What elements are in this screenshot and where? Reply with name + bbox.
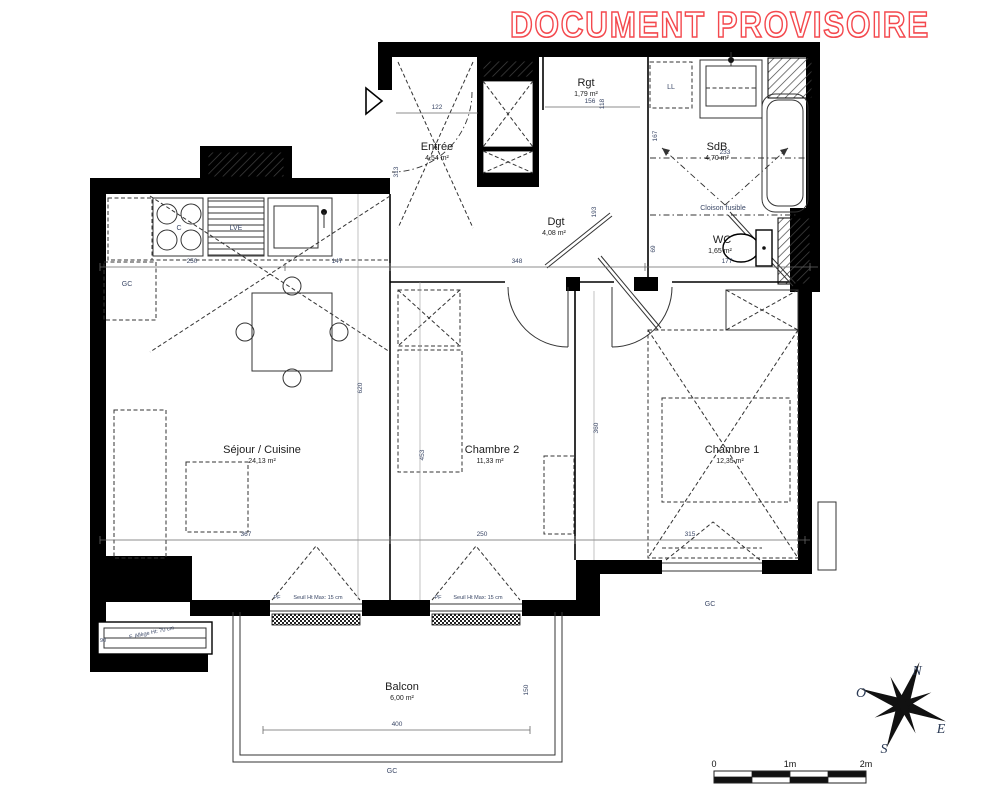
svg-text:1,65 m²: 1,65 m² <box>708 248 732 255</box>
watermark-text: DOCUMENT PROVISOIRE <box>510 4 930 45</box>
svg-text:Chambre 2: Chambre 2 <box>465 444 519 456</box>
room-label-chambre2: Chambre 2 11,33 m² <box>465 444 519 465</box>
compass-o: O <box>856 686 866 701</box>
compass-s: S <box>881 742 888 757</box>
outer-walls <box>90 42 836 672</box>
svg-text:Entrée: Entrée <box>421 141 453 153</box>
floor-plan-drawing: DOCUMENT PROVISOIRE <box>0 0 982 800</box>
dim-250a: 250 <box>187 258 198 265</box>
dim-118: 118 <box>599 98 606 109</box>
washing-machine: LL <box>650 62 692 108</box>
scale-2m: 2m <box>860 759 873 769</box>
dim-313: 313 <box>393 166 400 177</box>
svg-text:24,13 m²: 24,13 m² <box>248 458 276 465</box>
svg-text:Dgt: Dgt <box>547 216 564 228</box>
dim-balcon-depth: 150 <box>523 684 530 695</box>
svg-text:4,54 m²: 4,54 m² <box>425 155 449 162</box>
dim-177: 177 <box>722 258 733 265</box>
gc-label-balcon: GC <box>387 768 398 775</box>
dim-167: 167 <box>652 130 659 141</box>
room-label-entree: Entrée 4,54 m² <box>421 141 453 162</box>
bedroom1-furniture <box>648 290 798 558</box>
duct-gc: GC <box>104 262 156 320</box>
svg-text:Chambre 1: Chambre 1 <box>705 444 759 456</box>
stove: C <box>153 198 203 256</box>
dining-table <box>236 277 348 387</box>
desk <box>544 456 574 534</box>
entrance-arrow-icon <box>366 88 382 114</box>
seuil-label-1: Seuil Ht Max: 15 cm <box>293 595 343 601</box>
seuil-label-2: Seuil Ht Max: 15 cm <box>453 595 503 601</box>
svg-text:Séjour / Cuisine: Séjour / Cuisine <box>223 444 301 456</box>
scale-bar: 0 1m 2m <box>711 759 872 783</box>
dim-367: 367 <box>241 531 252 538</box>
pf-label-2: PF <box>434 595 442 601</box>
dim-315: 315 <box>685 531 696 538</box>
dim-90: 90 <box>100 638 106 644</box>
pf-label-1: PF <box>273 595 281 601</box>
dim-147: 147 <box>332 258 343 265</box>
dim-250b: 250 <box>477 531 488 538</box>
room-label-wc: WC 1,65 m² <box>708 234 732 255</box>
compass-n: N <box>911 664 922 679</box>
page: DOCUMENT PROVISOIRE <box>0 0 982 800</box>
dim-360: 360 <box>593 422 600 433</box>
bed-2 <box>398 350 462 472</box>
room-label-sdb: SdB 4,70 m² <box>705 141 729 162</box>
gc-label-kitchen: GC <box>122 281 133 288</box>
dim-620: 620 <box>357 382 364 393</box>
dim-69: 69 <box>650 245 657 253</box>
sofa <box>114 410 166 558</box>
svg-text:SdB: SdB <box>707 141 728 153</box>
scale-1m: 1m <box>784 759 797 769</box>
room-label-dgt: Dgt 4,08 m² <box>542 216 566 237</box>
coffee-table <box>186 462 248 532</box>
room-label-balcon: Balcon 6,00 m² <box>385 681 419 702</box>
room-label-rgt: Rgt 1,79 m² <box>574 77 598 98</box>
dim-122: 122 <box>432 104 443 111</box>
svg-text:11,33 m²: 11,33 m² <box>476 458 504 465</box>
scale-0: 0 <box>711 759 716 769</box>
dishwasher-label: LVE <box>230 225 243 232</box>
svg-text:12,35 m²: 12,35 m² <box>716 458 744 465</box>
svg-text:4,08 m²: 4,08 m² <box>542 230 566 237</box>
svg-text:WC: WC <box>713 234 731 246</box>
bedroom2-furniture <box>398 290 574 534</box>
cloison-fusible-label: Cloison fusible <box>700 205 746 212</box>
stove-label: C <box>176 225 181 232</box>
fridge <box>108 198 152 260</box>
dishwasher: LVE <box>208 198 264 256</box>
openings <box>98 522 762 654</box>
kitchen-sink <box>268 198 332 256</box>
dim-193: 193 <box>591 206 598 217</box>
svg-text:6,00 m²: 6,00 m² <box>390 695 414 702</box>
compass-e: E <box>936 722 946 737</box>
svg-text:Rgt: Rgt <box>577 77 594 89</box>
dim-156: 156 <box>585 98 596 105</box>
svg-text:4,70 m²: 4,70 m² <box>705 155 729 162</box>
compass-rose-icon: N O E S <box>844 646 963 765</box>
dim-348: 348 <box>512 258 523 265</box>
washbasin <box>700 52 762 118</box>
kitchen-fittings: C LVE GC <box>104 198 388 320</box>
svg-text:Balcon: Balcon <box>385 681 419 693</box>
svg-text:1,79 m²: 1,79 m² <box>574 91 598 98</box>
dim-453: 453 <box>419 449 426 460</box>
gc-label-window: GC <box>705 601 716 608</box>
washing-machine-label: LL <box>667 84 675 91</box>
dim-balcon-width: 400 <box>392 721 403 728</box>
room-label-chambre1: Chambre 1 12,35 m² <box>705 444 759 465</box>
